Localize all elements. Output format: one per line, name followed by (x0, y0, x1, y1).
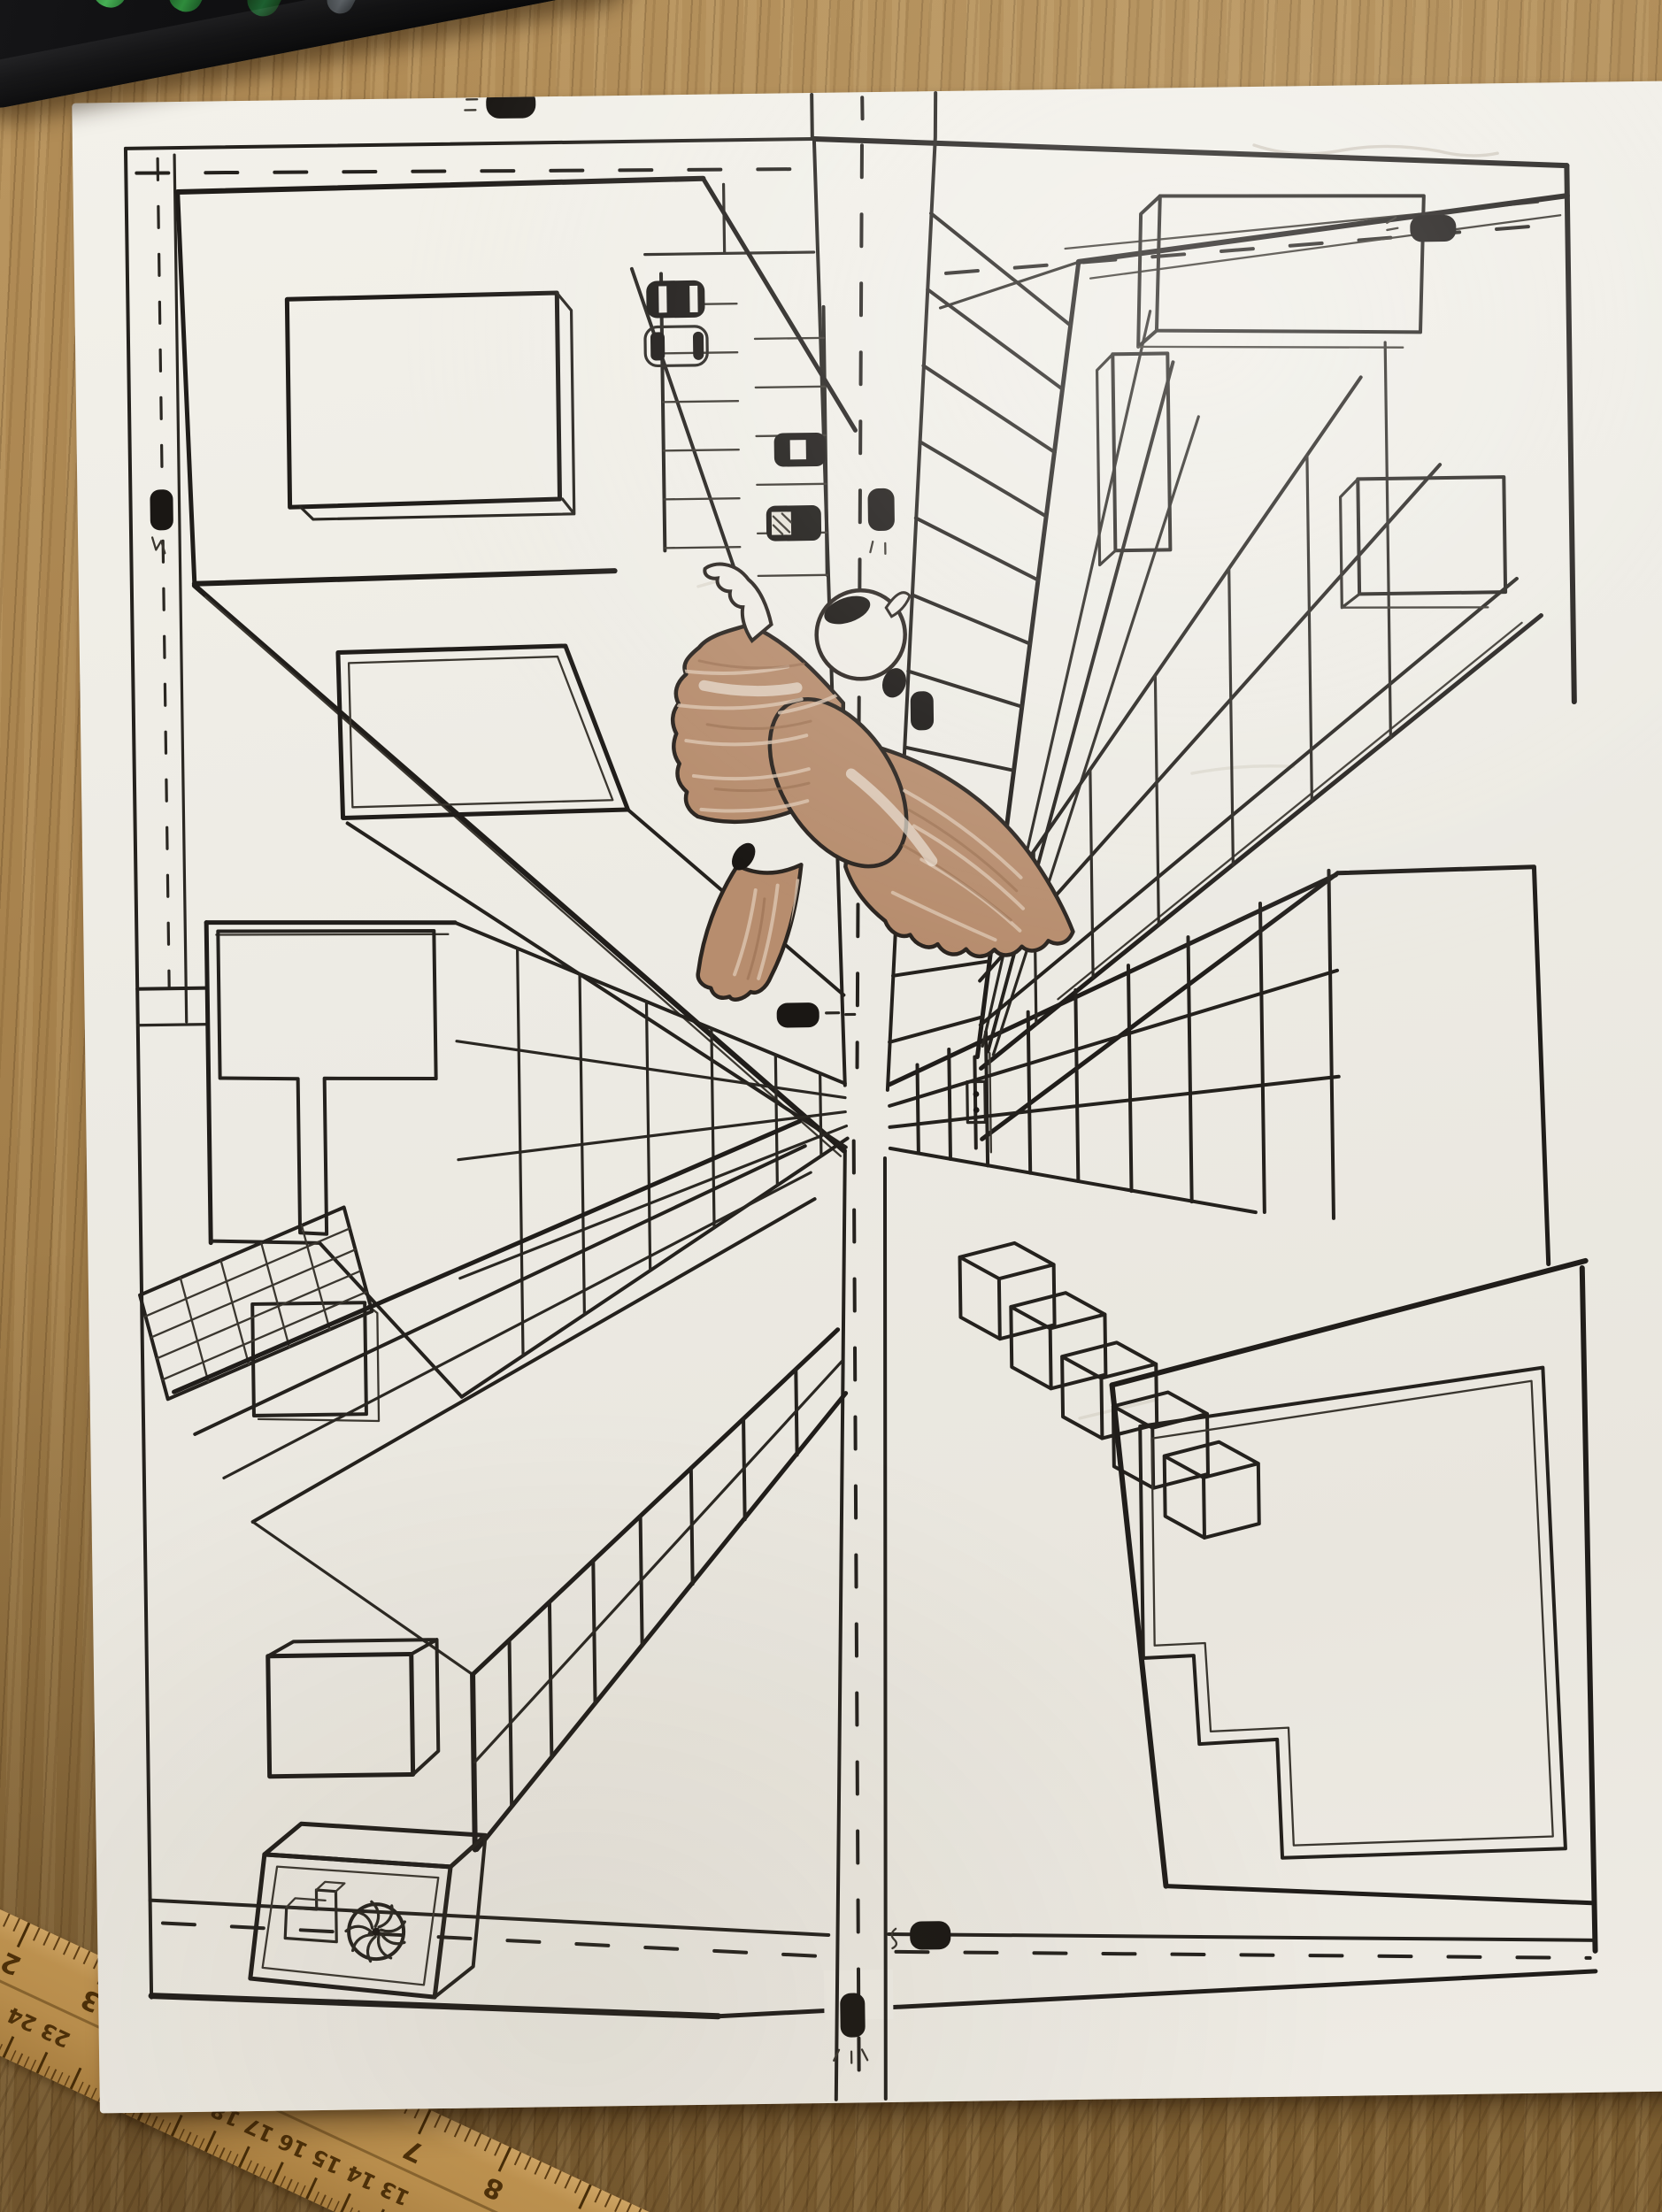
ruler-inch-number: 8 (479, 2170, 509, 2207)
ruler-cm-number: 13 (376, 2176, 413, 2210)
ruler-inch-number: 2 (0, 1945, 26, 1981)
ruler-inch-number: 7 (399, 2132, 429, 2169)
ruler-cm-number: 23 (37, 2017, 74, 2052)
photo-stage: 2 3 7 8 24 23 18 17 16 15 14 13 (0, 0, 1662, 2212)
drawing-paper (72, 81, 1662, 2114)
ruler-cm-number: 14 (342, 2160, 380, 2194)
ruler-cm-number: 24 (4, 2001, 41, 2036)
paper-lighting (72, 81, 1662, 2114)
ruler-cm-number: 16 (274, 2128, 312, 2162)
ruler-cm-number: 15 (308, 2144, 345, 2178)
ruler-cm-number: 17 (241, 2112, 278, 2147)
green-marker (88, 0, 238, 13)
